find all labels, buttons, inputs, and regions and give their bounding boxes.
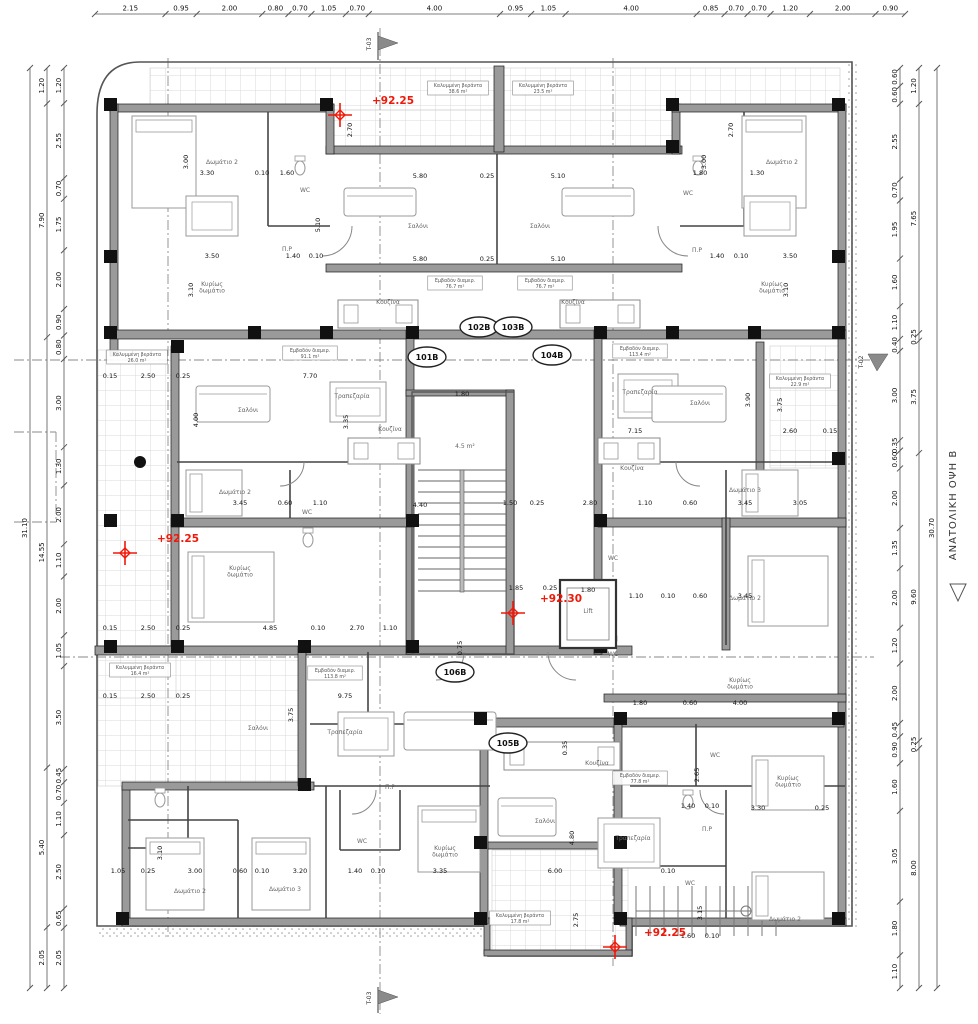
wall [756, 342, 764, 470]
room-label: Δωμάτιο 3 [269, 886, 301, 893]
dim-text: 0.80 [55, 339, 63, 355]
dim-text: 2.55 [55, 133, 63, 149]
room-label: Κουζίνα [561, 299, 585, 306]
area-label-value: 22.9 m² [791, 382, 810, 388]
section-flag-label: T-03 [366, 991, 373, 1005]
dim-text: 0.95 [173, 5, 189, 13]
dim-text: 2.00 [891, 590, 899, 606]
plan-dimension: 2.65 [693, 768, 701, 782]
area-label-text: Καλυμμένη βεράντα [116, 664, 164, 671]
room-label: 4.5 m² [455, 443, 475, 450]
plan-dimension: 2.50 [141, 372, 155, 380]
dim-text: 0.60 [891, 452, 899, 468]
unit-bubble-label: 106B [444, 668, 467, 677]
section-flag-label: T-03 [366, 37, 373, 51]
plan-dimension: 6.00 [548, 867, 562, 875]
area-label-text: Καλυμμένη βεράντα [776, 375, 824, 382]
plan-dimension: 2.80 [583, 499, 597, 507]
area-label-text: Καλυμμένη βεράντα [113, 351, 161, 358]
dim-text: 9.60 [910, 589, 918, 605]
dim-text: 0.70 [751, 5, 767, 13]
plan-dimension: 0.60 [683, 499, 697, 507]
dim-text: 14.55 [38, 542, 46, 562]
plan-dimension: 0.10 [309, 252, 323, 260]
dim-text: 1.20 [55, 78, 63, 94]
plan-dimension: 1.80 [581, 586, 595, 594]
toilet [155, 793, 165, 807]
column [594, 326, 607, 339]
plan-dimension: 3.45 [233, 499, 247, 507]
dim-text: 3.50 [55, 710, 63, 726]
plan-dimension: 0.25 [480, 255, 494, 263]
dim-text: 3.00 [891, 388, 899, 404]
column [320, 98, 333, 111]
area-label-value: 76.7 m² [446, 284, 465, 290]
toilet-tank [303, 528, 313, 533]
plan-dimension: 2.75 [572, 913, 580, 927]
column [298, 640, 311, 653]
dim-text: 1.30 [55, 458, 63, 474]
dim-text: 0.90 [55, 314, 63, 330]
dim-text: 0.65 [55, 910, 63, 926]
dim-text: 4.00 [623, 5, 639, 13]
area-label-value: 77.8 m² [631, 779, 650, 785]
plan-dimension: 1.80 [455, 390, 469, 398]
column [832, 912, 845, 925]
dining-table [598, 818, 660, 868]
elevation-value: +92.25 [644, 927, 686, 939]
plan-dimension: 0.10 [255, 169, 269, 177]
door-arc [352, 790, 376, 814]
wall [326, 264, 682, 272]
dim-text: 1.10 [891, 315, 899, 331]
unit-bubble-label: 105B [497, 739, 520, 748]
room-label: Κουζίνα [376, 299, 400, 306]
dim-text: 30.70 [928, 518, 936, 538]
survey-dot [134, 456, 146, 468]
wall [110, 104, 118, 356]
plan-dimension: 3.10 [782, 283, 790, 297]
dim-text: 3.75 [910, 389, 918, 405]
plan-dimension: 3.00 [700, 155, 708, 169]
column [298, 778, 311, 791]
plan-dimension: 4.00 [192, 413, 200, 427]
plan-dimension: 0.10 [661, 592, 675, 600]
plan-dimension: 5.10 [314, 218, 322, 232]
area-label-value: 38.6 m² [449, 89, 468, 95]
plan-dimension: 0.75 [456, 641, 464, 655]
unit-bubble-label: 102B [468, 323, 491, 332]
dim-text: 0.70 [55, 181, 63, 197]
column [171, 640, 184, 653]
bed [418, 806, 480, 872]
plan-dimension: 3.20 [293, 867, 307, 875]
elevation-view-triangle [950, 584, 966, 601]
area-label-text: Καλυμμένη βεράντα [434, 82, 482, 89]
east-elevation-label: ΑΝΑΤΟΛΙΚΗ ΟΨΗ Β [948, 450, 959, 561]
plan-dimension: 0.10 [705, 802, 719, 810]
dim-text: 2.55 [891, 134, 899, 150]
column [666, 140, 679, 153]
column [832, 250, 845, 263]
room-label: Π.Ρ [385, 784, 395, 791]
column [832, 326, 845, 339]
column [614, 712, 627, 725]
plan-dimension: 0.15 [823, 427, 837, 435]
dim-text: 3.00 [55, 395, 63, 411]
dim-text: 8.00 [910, 860, 918, 876]
dim-text: 0.80 [268, 5, 284, 13]
dim-text: 1.75 [55, 217, 63, 233]
plan-dimension: 3.75 [776, 398, 784, 412]
dim-text: 1.05 [55, 643, 63, 659]
dim-text: 2.00 [835, 5, 851, 13]
dim-text: 0.35 [891, 438, 899, 454]
bed [752, 872, 824, 920]
plan-dimension: 2.70 [346, 123, 354, 137]
sofa [196, 386, 270, 422]
column [104, 514, 117, 527]
wall [406, 330, 414, 654]
sofa [562, 188, 634, 216]
edge-hatch [97, 926, 488, 938]
dim-text: 0.45 [55, 768, 63, 784]
dim-text: 1.35 [891, 540, 899, 556]
toilet-tank [155, 788, 165, 793]
dim-text: 0.85 [703, 5, 719, 13]
dim-text: 0.25 [910, 737, 918, 753]
room-label: δωμάτιο [432, 851, 458, 858]
room-label: WC [608, 651, 618, 658]
wall [122, 782, 314, 790]
dim-text: 2.00 [55, 272, 63, 288]
plan-dimension: 1.10 [629, 592, 643, 600]
plan-dimension: 5.80 [413, 172, 427, 180]
area-label-text: Εμβαδόν διαμερ. [620, 772, 660, 779]
plan-dimension: 3.90 [744, 393, 752, 407]
area-label-value: 17.8 m² [511, 919, 530, 925]
plan-dimension: 0.15 [103, 372, 117, 380]
column [406, 514, 419, 527]
area-label-value: 76.7 m² [536, 284, 555, 290]
column [832, 452, 845, 465]
wall [122, 786, 130, 926]
door-arc [548, 652, 576, 680]
room-label: Δωμάτιο 2 [766, 159, 798, 166]
dim-text: 0.45 [891, 722, 899, 738]
floor-plan-drawing: 101B102B103B104B106B105BΚαλυμμένη βεράντ… [0, 0, 978, 1024]
unit-bubble-label: 103B [502, 323, 525, 332]
section-flag [378, 36, 398, 50]
room-label: Σαλόνι [690, 400, 710, 407]
room-label: WC [302, 509, 312, 516]
dim-text: 2.05 [38, 950, 46, 966]
toilet [303, 533, 313, 547]
dim-text: 0.95 [508, 5, 524, 13]
plan-dimension: 1.10 [638, 499, 652, 507]
dim-text: 2.00 [891, 685, 899, 701]
room-label: Τραπεζαρία [614, 835, 650, 842]
area-label-text: Εμβαδόν διαμερ. [290, 347, 330, 354]
area-label-text: Εμβαδόν διαμερ. [525, 277, 565, 284]
room-label: Σαλόνι [238, 407, 258, 414]
column [171, 340, 184, 353]
dim-text: 1.20 [891, 638, 899, 654]
dim-text: 1.20 [910, 78, 918, 94]
room-label: Κουζίνα [378, 426, 402, 433]
area-label-text: Καλυμμένη βεράντα [519, 82, 567, 89]
plan-dimension: 0.35 [561, 741, 569, 755]
door-arc [322, 226, 352, 256]
plan-dimension: 1.10 [313, 499, 327, 507]
plan-dimension: 1.05 [111, 867, 125, 875]
dim-text: 1.05 [321, 5, 337, 13]
kitchen-counter [598, 438, 660, 464]
plan-dimension: 3.30 [751, 804, 765, 812]
plan-dimension: 1.30 [750, 169, 764, 177]
plan-dimension: 3.05 [793, 499, 807, 507]
dim-text: 0.70 [55, 785, 63, 801]
dim-text: 0.60 [891, 69, 899, 85]
column [104, 250, 117, 263]
dim-text: 0.70 [728, 5, 744, 13]
door-arc [676, 462, 700, 486]
dim-text: 0.90 [891, 742, 899, 758]
plan-dimension: 0.25 [176, 692, 190, 700]
room-label: Σαλόνι [530, 223, 550, 230]
plan-dimension: 4.40 [413, 501, 427, 509]
plan-dimension: 5.10 [551, 172, 565, 180]
elevation-value: +92.25 [157, 533, 199, 545]
sofa [344, 188, 416, 216]
area-label-value: 113.8 m² [324, 674, 346, 680]
section-flag [378, 990, 398, 1004]
column [474, 912, 487, 925]
room-label: Π.Ρ [692, 247, 702, 254]
wall [298, 646, 306, 786]
plan-dimension: 1.60 [280, 169, 294, 177]
room-label: WC [685, 880, 695, 887]
plan-dimension: 3.45 [738, 592, 752, 600]
dim-text: 1.60 [891, 275, 899, 291]
plan-dimension: 3.75 [287, 708, 295, 722]
room-label: Δωμάτιο 2 [174, 888, 206, 895]
dim-text: 1.10 [55, 811, 63, 827]
dim-text: 2.00 [222, 5, 238, 13]
room-label: WC [710, 752, 720, 759]
plan-dimension: 3.45 [738, 499, 752, 507]
dim-text: 1.05 [541, 5, 557, 13]
plan-dimension: 7.70 [303, 372, 317, 380]
dim-text: 2.05 [55, 950, 63, 966]
plan-dimension: 0.25 [176, 624, 190, 632]
plan-dimension: 0.10 [661, 867, 675, 875]
plan-dimension: 0.60 [683, 699, 697, 707]
area-label-value: 113.4 m² [629, 352, 651, 358]
column [832, 98, 845, 111]
plan-dimension: 3.30 [200, 169, 214, 177]
dim-text: 0.25 [910, 329, 918, 345]
plan-dimension: 0.25 [176, 372, 190, 380]
plan-dimension: 9.75 [338, 692, 352, 700]
plan-dimension: 1.10 [383, 624, 397, 632]
plan-dimension: 1.40 [710, 252, 724, 260]
dim-text: 4.00 [427, 5, 443, 13]
sofa [498, 798, 556, 836]
area-label-text: Εμβαδόν διαμερ. [315, 667, 355, 674]
column [104, 326, 117, 339]
plan-dimension: 5.80 [413, 255, 427, 263]
room-label: Σαλόνι [408, 223, 428, 230]
plan-dimension: 0.10 [371, 867, 385, 875]
column [832, 712, 845, 725]
area-label-value: 91.1 m² [301, 354, 320, 360]
room-label: Δωμάτιο 2 [219, 489, 251, 496]
floor-plan-page: 101B102B103B104B106B105BΚαλυμμένη βεράντ… [0, 0, 978, 1024]
plan-dimension: 0.10 [705, 932, 719, 940]
wall [480, 718, 844, 727]
wall [838, 104, 846, 926]
column [474, 836, 487, 849]
area-label-text: Εμβαδόν διαμερ. [620, 345, 660, 352]
room-label: Δωμάτιο 2 [769, 916, 801, 923]
dim-text: 0.70 [292, 5, 308, 13]
column [406, 640, 419, 653]
column [171, 514, 184, 527]
elevation-value: +92.25 [372, 95, 414, 107]
wall [484, 950, 632, 956]
dim-text: 1.80 [891, 921, 899, 937]
plan-dimension: 0.15 [103, 624, 117, 632]
dim-text: 5.40 [38, 840, 46, 856]
plan-dimension: 3.50 [783, 252, 797, 260]
plan-dimension: 2.60 [783, 427, 797, 435]
toilet [295, 161, 305, 175]
plan-dimension: 4.85 [263, 624, 277, 632]
dim-text: 0.40 [891, 337, 899, 353]
dim-text: 0.70 [350, 5, 366, 13]
room-label: WC [300, 187, 310, 194]
plan-dimension: 1.50 [503, 499, 517, 507]
column [666, 98, 679, 111]
room-label: δωμάτιο [775, 781, 801, 788]
dim-text: 3.05 [891, 848, 899, 864]
plan-dimension: 3.35 [342, 415, 350, 429]
dim-text: 1.60 [891, 779, 899, 795]
dim-text: 0.70 [891, 182, 899, 198]
plan-dimension: 5.10 [551, 255, 565, 263]
dim-text: 2.00 [55, 598, 63, 614]
dim-text: 0.60 [891, 87, 899, 103]
plan-dimension: 3.35 [433, 867, 447, 875]
plan-dimension: 2.70 [350, 624, 364, 632]
plan-dimension: 0.10 [311, 624, 325, 632]
toilet-tank [295, 156, 305, 161]
room-label: δωμάτιο [227, 571, 253, 578]
room-label: WC [683, 190, 693, 197]
stair-rail [460, 470, 464, 592]
plan-dimension: 0.10 [734, 252, 748, 260]
plan-dimension: 1.85 [509, 584, 523, 592]
plan-dimension: 3.10 [156, 846, 164, 860]
room-label: WC [357, 838, 367, 845]
door-arc [280, 462, 304, 486]
kitchen-counter [348, 438, 420, 464]
area-label-text: Εμβαδόν διαμερ. [435, 277, 475, 284]
room-label: δωμάτιο [199, 287, 225, 294]
column [104, 98, 117, 111]
column [614, 912, 627, 925]
dim-text: 1.10 [891, 964, 899, 980]
area-label-value: 16.4 m² [131, 671, 150, 677]
unit-bubble-label: 104B [541, 351, 564, 360]
plan-dimension: 3.10 [187, 283, 195, 297]
column [406, 326, 419, 339]
column [248, 326, 261, 339]
column [320, 326, 333, 339]
plan-dimension: 4.80 [568, 831, 576, 845]
room-label: δωμάτιο [727, 683, 753, 690]
plan-dimension: 1.40 [681, 802, 695, 810]
bed [188, 552, 274, 622]
dim-text: 0.90 [882, 5, 898, 13]
plan-dimension: 2.50 [141, 692, 155, 700]
column [116, 912, 129, 925]
column [474, 712, 487, 725]
plan-dimension: 3.00 [188, 867, 202, 875]
column [748, 326, 761, 339]
section-flag-label: T-02 [858, 355, 865, 369]
column [594, 514, 607, 527]
column [666, 326, 679, 339]
wall [171, 346, 179, 654]
plan-dimension: 0.25 [815, 804, 829, 812]
plan-dimension: 0.60 [278, 499, 292, 507]
room-label: Τραπεζαρία [621, 389, 657, 396]
column [104, 640, 117, 653]
unit-bubble-label: 101B [416, 353, 439, 362]
room-label: Δωμάτιο 2 [206, 159, 238, 166]
toilet-tank [683, 790, 693, 795]
room-label: Τραπεζαρία [333, 393, 369, 400]
elevation-value: +92.30 [540, 593, 582, 605]
plan-dimension: 1.40 [286, 252, 300, 260]
section-flag [868, 354, 888, 371]
room-label: Δωμάτιο 3 [729, 487, 761, 494]
dim-text: 1.10 [55, 553, 63, 569]
wall [122, 918, 490, 926]
plan-dimension: 2.70 [727, 123, 735, 137]
plan-dimension: 0.10 [255, 867, 269, 875]
room-label: Τραπεζαρία [326, 729, 362, 736]
dim-text: 1.95 [891, 222, 899, 238]
dim-text: 7.90 [38, 213, 46, 229]
plan-dimension: 0.25 [543, 584, 557, 592]
plan-dimension: 3.15 [696, 906, 704, 920]
room-label: Σαλόνι [248, 725, 268, 732]
room-label: Σαλόνι [535, 818, 555, 825]
wall [494, 66, 504, 152]
plan-dimension: 0.60 [233, 867, 247, 875]
plan-dimension: 3.00 [182, 155, 190, 169]
wall [326, 104, 334, 154]
plan-dimension: 1.40 [348, 867, 362, 875]
dim-text: 1.20 [38, 78, 46, 94]
room-label: Κουζίνα [620, 465, 644, 472]
plan-dimension: 0.60 [693, 592, 707, 600]
dim-text: 7.65 [910, 211, 918, 227]
dim-text: 2.50 [55, 864, 63, 880]
